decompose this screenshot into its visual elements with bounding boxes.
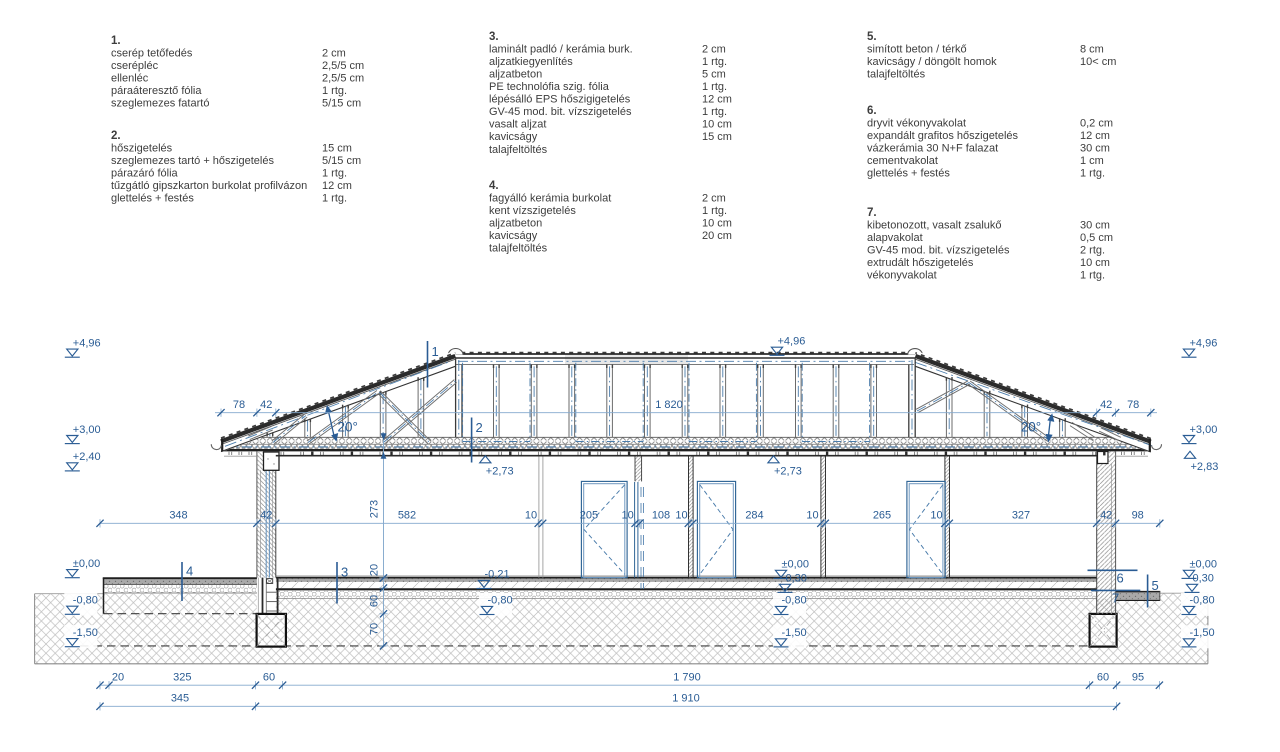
svg-text:1 rtg.: 1 rtg. <box>702 106 727 118</box>
svg-text:ellenléc: ellenléc <box>111 73 149 85</box>
svg-text:12 cm: 12 cm <box>1080 130 1110 142</box>
svg-text:6.: 6. <box>867 105 877 117</box>
svg-text:-0,80: -0,80 <box>1190 595 1215 607</box>
svg-text:vázkerámia 30 N+F falazat: vázkerámia 30 N+F falazat <box>867 143 998 155</box>
svg-text:aljzatbeton: aljzatbeton <box>489 218 542 230</box>
svg-text:10: 10 <box>525 510 537 522</box>
svg-text:265: 265 <box>873 510 891 522</box>
svg-text:6: 6 <box>1117 571 1124 586</box>
svg-text:glettelés + festés: glettelés + festés <box>867 168 950 180</box>
svg-text:78: 78 <box>233 399 245 411</box>
svg-text:páraáteresztő fólia: páraáteresztő fólia <box>111 85 202 97</box>
svg-text:0,30: 0,30 <box>786 573 807 585</box>
svg-text:talajfeltöltés: talajfeltöltés <box>489 144 548 156</box>
svg-text:10< cm: 10< cm <box>1080 56 1116 68</box>
svg-text:cementvakolat: cementvakolat <box>867 155 938 167</box>
svg-text:108: 108 <box>652 510 670 522</box>
svg-text:alapvakolat: alapvakolat <box>867 232 923 244</box>
svg-text:7: 7 <box>1112 591 1119 606</box>
svg-text:vékonyvakolat: vékonyvakolat <box>867 270 937 282</box>
svg-text:20: 20 <box>112 672 124 684</box>
svg-text:2 rtg.: 2 rtg. <box>1080 245 1105 257</box>
svg-text:fagyálló kerámia burkolat: fagyálló kerámia burkolat <box>489 192 611 204</box>
svg-text:2 cm: 2 cm <box>702 192 726 204</box>
svg-text:+4,96: +4,96 <box>73 337 101 349</box>
svg-text:0,5 cm: 0,5 cm <box>1080 232 1113 244</box>
svg-text:2: 2 <box>476 420 483 435</box>
svg-text:1 rtg.: 1 rtg. <box>1080 270 1105 282</box>
svg-text:30 cm: 30 cm <box>1080 219 1110 231</box>
svg-text:1 rtg.: 1 rtg. <box>702 56 727 68</box>
svg-text:2.: 2. <box>111 130 121 142</box>
svg-text:348: 348 <box>169 510 187 522</box>
svg-text:GV-45 mod. bit. vízszigetelés: GV-45 mod. bit. vízszigetelés <box>489 106 632 118</box>
svg-text:extrudált hőszigetelés: extrudált hőszigetelés <box>867 257 974 269</box>
svg-text:dryvit vékonyvakolat: dryvit vékonyvakolat <box>867 117 966 129</box>
svg-text:2 cm: 2 cm <box>702 43 726 55</box>
svg-text:laminált padló / kerámia burk.: laminált padló / kerámia burk. <box>489 43 633 55</box>
svg-text:+4,96: +4,96 <box>1190 337 1218 349</box>
svg-text:3.: 3. <box>489 31 499 43</box>
svg-text:60: 60 <box>263 672 275 684</box>
svg-text:7.: 7. <box>867 207 877 219</box>
svg-text:98: 98 <box>1132 510 1144 522</box>
svg-text:5 cm: 5 cm <box>702 69 726 81</box>
svg-text:345: 345 <box>171 693 189 705</box>
svg-text:1.: 1. <box>111 35 121 47</box>
svg-text:+4,96: +4,96 <box>778 336 806 348</box>
svg-text:aljzatbeton: aljzatbeton <box>489 69 542 81</box>
svg-text:kent vízszigetelés: kent vízszigetelés <box>489 205 576 217</box>
svg-text:15 cm: 15 cm <box>702 131 732 143</box>
svg-text:hőszigetelés: hőszigetelés <box>111 142 173 154</box>
svg-text:5: 5 <box>1152 578 1159 593</box>
svg-text:582: 582 <box>398 510 416 522</box>
svg-text:±0,00: ±0,00 <box>1190 559 1217 571</box>
svg-text:5/15 cm: 5/15 cm <box>322 98 361 110</box>
svg-text:-0,80: -0,80 <box>488 595 513 607</box>
svg-text:-1,50: -1,50 <box>1190 627 1215 639</box>
svg-text:3: 3 <box>341 565 348 580</box>
svg-text:5/15 cm: 5/15 cm <box>322 155 361 167</box>
svg-text:1 rtg.: 1 rtg. <box>322 168 347 180</box>
svg-text:+3,00: +3,00 <box>73 424 101 436</box>
svg-text:1 790: 1 790 <box>673 672 701 684</box>
svg-text:kibetonozott, vasalt zsalukő: kibetonozott, vasalt zsalukő <box>867 219 1002 231</box>
svg-text:20°: 20° <box>1021 420 1041 435</box>
svg-text:1 910: 1 910 <box>672 693 700 705</box>
svg-text:szeglemezes fatartó: szeglemezes fatartó <box>111 98 209 110</box>
svg-text:1 rtg.: 1 rtg. <box>322 193 347 205</box>
svg-text:273: 273 <box>369 500 381 518</box>
svg-text:kavicságy: kavicságy <box>489 131 538 143</box>
svg-text:20: 20 <box>369 564 381 576</box>
svg-text:205: 205 <box>580 510 598 522</box>
svg-text:325: 325 <box>173 672 191 684</box>
svg-text:5.: 5. <box>867 31 877 43</box>
svg-text:12 cm: 12 cm <box>702 94 732 106</box>
svg-text:2,5/5 cm: 2,5/5 cm <box>322 60 364 72</box>
svg-text:-1,50: -1,50 <box>73 627 98 639</box>
svg-text:+2,83: +2,83 <box>1191 461 1219 473</box>
svg-text:tűzgátló gipszkarton burkolat: tűzgátló gipszkarton burkolat profilvázo… <box>111 180 307 192</box>
svg-text:glettelés + festés: glettelés + festés <box>111 193 194 205</box>
svg-text:talajfeltöltés: talajfeltöltés <box>489 243 548 255</box>
svg-text:15 cm: 15 cm <box>322 142 352 154</box>
svg-text:simított beton / térkő: simított beton / térkő <box>867 43 967 55</box>
svg-text:4: 4 <box>186 564 193 579</box>
svg-text:1 rtg.: 1 rtg. <box>702 81 727 93</box>
svg-text:10: 10 <box>675 510 687 522</box>
svg-text:±0,00: ±0,00 <box>782 559 809 571</box>
svg-text:60: 60 <box>369 595 381 607</box>
svg-text:10 cm: 10 cm <box>702 119 732 131</box>
svg-text:PE technolófia szig. fólia: PE technolófia szig. fólia <box>489 81 610 93</box>
svg-text:+2,73: +2,73 <box>486 465 514 477</box>
svg-text:lépésálló EPS hőszigigetelés: lépésálló EPS hőszigigetelés <box>489 94 631 106</box>
svg-text:10: 10 <box>621 510 633 522</box>
svg-text:2 cm: 2 cm <box>322 47 346 59</box>
svg-text:+2,73: +2,73 <box>774 465 802 477</box>
svg-text:95: 95 <box>1132 672 1144 684</box>
svg-text:2,5/5 cm: 2,5/5 cm <box>322 73 364 85</box>
svg-text:10 cm: 10 cm <box>1080 257 1110 269</box>
svg-text:12 cm: 12 cm <box>322 180 352 192</box>
svg-text:aljzatkiegyenlítés: aljzatkiegyenlítés <box>489 56 573 68</box>
svg-text:±0,00: ±0,00 <box>73 558 100 570</box>
svg-text:42: 42 <box>260 399 272 411</box>
svg-text:30 cm: 30 cm <box>1080 143 1110 155</box>
svg-text:kavicságy / döngölt homok: kavicságy / döngölt homok <box>867 56 997 68</box>
svg-text:+3,00: +3,00 <box>1190 424 1218 436</box>
svg-text:1 rtg.: 1 rtg. <box>702 205 727 217</box>
svg-text:4.: 4. <box>489 180 499 192</box>
svg-text:párazáró fólia: párazáró fólia <box>111 168 179 180</box>
svg-text:10: 10 <box>806 510 818 522</box>
svg-text:8 cm: 8 cm <box>1080 43 1104 55</box>
svg-text:78: 78 <box>1127 399 1139 411</box>
svg-text:20°: 20° <box>338 420 358 435</box>
svg-text:1 820: 1 820 <box>655 399 683 411</box>
svg-text:talajfeltöltés: talajfeltöltés <box>867 69 926 81</box>
svg-text:-0,21: -0,21 <box>485 569 510 581</box>
svg-text:284: 284 <box>745 510 763 522</box>
svg-text:-0,80: -0,80 <box>73 595 98 607</box>
svg-text:42: 42 <box>1100 399 1112 411</box>
svg-text:70: 70 <box>369 623 381 635</box>
svg-text:327: 327 <box>1012 510 1030 522</box>
svg-text:42: 42 <box>1100 510 1112 522</box>
svg-text:1 rtg.: 1 rtg. <box>1080 168 1105 180</box>
svg-text:cserépléc: cserépléc <box>111 60 159 72</box>
svg-text:1 rtg.: 1 rtg. <box>322 85 347 97</box>
svg-text:expandált grafitos hőszigetelé: expandált grafitos hőszigetelés <box>867 130 1019 142</box>
svg-text:szeglemezes tartó + hőszigetel: szeglemezes tartó + hőszigetelés <box>111 155 274 167</box>
svg-text:0,30: 0,30 <box>1193 573 1214 585</box>
svg-text:10: 10 <box>930 510 942 522</box>
svg-text:1: 1 <box>432 344 439 359</box>
svg-text:cserép tetőfedés: cserép tetőfedés <box>111 47 193 59</box>
svg-text:0,2 cm: 0,2 cm <box>1080 117 1113 129</box>
svg-text:kavicságy: kavicságy <box>489 230 538 242</box>
svg-text:+2,40: +2,40 <box>73 451 101 463</box>
svg-text:60: 60 <box>1097 672 1109 684</box>
svg-text:42: 42 <box>260 510 272 522</box>
svg-text:20 cm: 20 cm <box>702 230 732 242</box>
svg-text:GV-45 mod. bit. vízszigetelés: GV-45 mod. bit. vízszigetelés <box>867 245 1010 257</box>
svg-text:vasalt aljzat: vasalt aljzat <box>489 119 546 131</box>
svg-text:-0,80: -0,80 <box>782 595 807 607</box>
svg-text:-1,50: -1,50 <box>782 627 807 639</box>
svg-text:10 cm: 10 cm <box>702 218 732 230</box>
svg-text:1 cm: 1 cm <box>1080 155 1104 167</box>
